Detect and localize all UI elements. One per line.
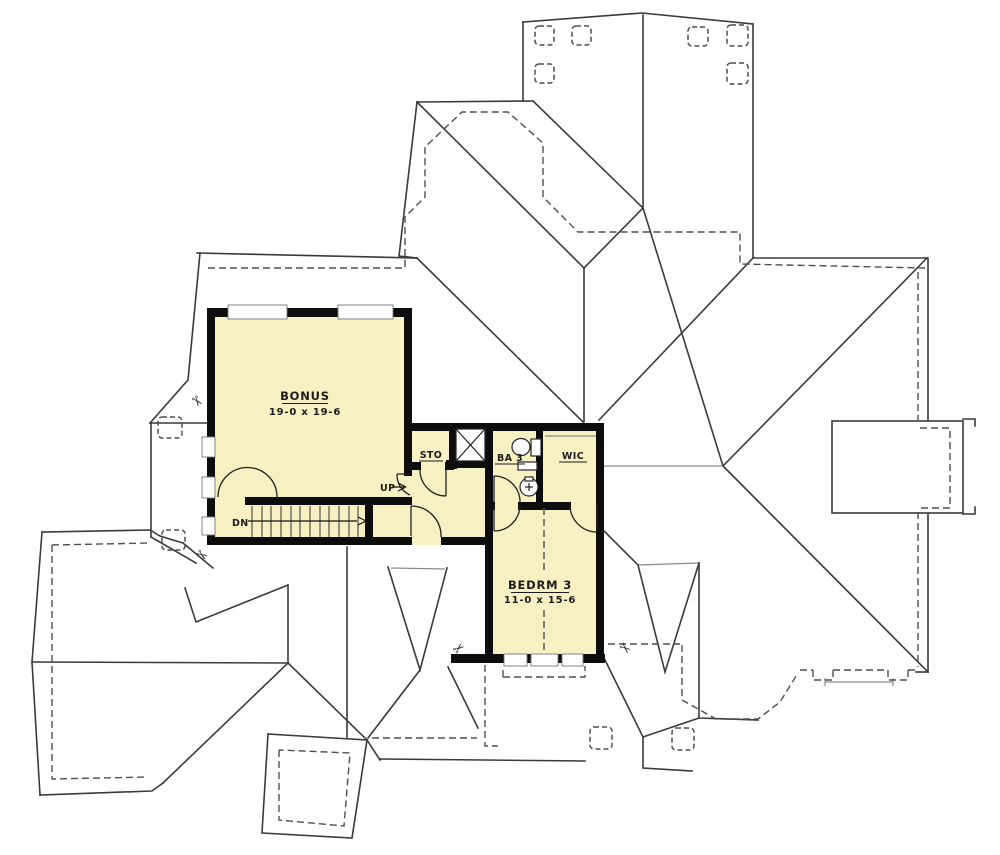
- bonus-room-dims: 19-0 x 19-6: [269, 407, 341, 418]
- stair-down-label: DN: [232, 518, 249, 529]
- break-mark-icon: ✂: [615, 639, 634, 659]
- floor-plan-page: ✂ ✂ ✂ ✂ BONUS 19-0 x 19-6 STO BA 3 WIC B…: [0, 0, 1000, 855]
- bonus-window: [228, 305, 287, 319]
- bonus-window: [338, 305, 393, 319]
- bedroom-window: [562, 654, 583, 666]
- bonus-side-window: [202, 477, 215, 498]
- bedroom-label: BEDRM 3: [508, 578, 572, 592]
- bedroom-dims: 11-0 x 15-6: [504, 595, 576, 606]
- bonus-side-window: [202, 437, 215, 457]
- bonus-side-window: [202, 517, 215, 535]
- bedroom-window: [531, 654, 558, 666]
- bath-label: BA 3: [497, 453, 523, 464]
- bonus-room-label: BONUS: [280, 389, 330, 403]
- floor-plan-drawing: ✂ ✂ ✂ ✂ BONUS 19-0 x 19-6 STO BA 3 WIC B…: [0, 0, 1000, 855]
- break-mark-icon: ✂: [186, 392, 206, 411]
- wic-label: WIC: [562, 451, 584, 462]
- storage-label: STO: [420, 450, 443, 461]
- bedroom-window: [504, 654, 527, 666]
- sink-icon: [520, 477, 538, 496]
- stair-up-label: UP: [380, 483, 395, 494]
- attic-access-icon: [456, 429, 485, 461]
